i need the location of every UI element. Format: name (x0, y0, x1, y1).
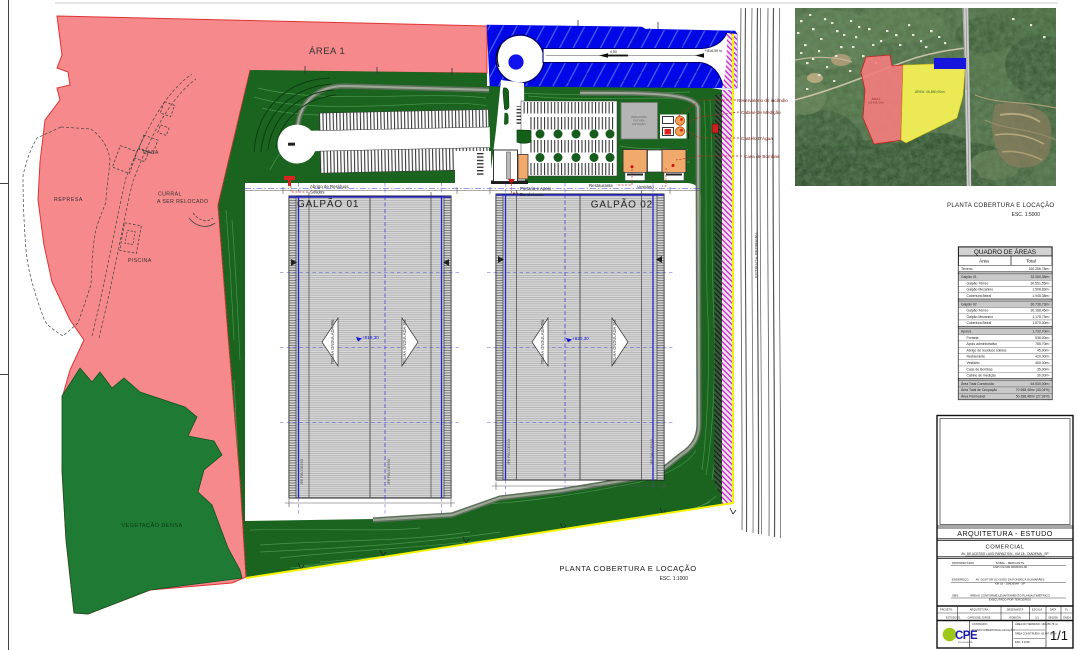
svg-text:ESC. 1:1000: ESC. 1:1000 (660, 576, 689, 582)
svg-text:Abrigo de resíduos sólidos: Abrigo de resíduos sólidos (967, 348, 1007, 352)
svg-text:ESTRADA PEDREIRA: ESTRADA PEDREIRA (754, 231, 759, 278)
svg-text:VEGETAÇÃO DENSA: VEGETAÇÃO DENSA (121, 522, 182, 529)
svg-text:+820,30: +820,30 (572, 336, 589, 341)
svg-text:Casa de Bombas: Casa de Bombas (967, 367, 993, 371)
svg-text:COMERCIAL: COMERCIAL (986, 545, 1025, 551)
svg-text:ÁREA 1: ÁREA 1 (309, 46, 345, 57)
svg-text:1.178,73m²: 1.178,73m² (1032, 315, 1050, 319)
svg-text:FL.: FL. (1065, 608, 1069, 612)
svg-text:Galpão Térreo: Galpão Térreo (967, 281, 989, 285)
svg-text:Portaria: Portaria (967, 336, 979, 340)
svg-text:Cobertura Beiral: Cobertura Beiral (967, 294, 992, 298)
svg-text:TELHA ONDULADA 3%: TELHA ONDULADA 3% (540, 319, 545, 364)
svg-text:Reservatório de incêndio: Reservatório de incêndio (737, 98, 788, 103)
svg-text:ESC. 1:1000: ESC. 1:1000 (1015, 640, 1030, 644)
svg-text:Área Total Construída: Área Total Construída (961, 382, 994, 386)
svg-text:JPE PAV.GESSO: JPE PAV.GESSO (507, 439, 511, 465)
svg-text:Restaurante: Restaurante (967, 355, 986, 359)
svg-text:Galpão 01: Galpão 01 (961, 275, 977, 279)
svg-text:Cabine de medição: Cabine de medição (967, 374, 996, 378)
svg-text:Área: Área (979, 258, 989, 264)
svg-text:Cabine de Medição: Cabine de Medição (741, 110, 781, 115)
svg-text:Galpão Mezanino: Galpão Mezanino (967, 315, 994, 319)
svg-text:GALPÃO 01: GALPÃO 01 (297, 197, 359, 210)
svg-text:ENGENHARIA: ENGENHARIA (958, 641, 973, 644)
svg-text:Galpão Mezanino: Galpão Mezanino (967, 288, 994, 292)
svg-text:1.508,83m²: 1.508,83m² (1032, 288, 1050, 292)
svg-text:DESENHISTA: DESENHISTA (1007, 608, 1024, 612)
svg-text:30.736,73m²: 30.736,73m² (1030, 302, 1050, 306)
svg-text:AV. DE ACESSO LUIGI PAPAIZ S/N: AV. DE ACESSO LUIGI PAPAIZ S/N - KM 18 -… (961, 552, 1048, 556)
svg-text:Área Total de Ocupação: Área Total de Ocupação (961, 388, 997, 392)
svg-text:CAROLINE JORGE: CAROLINE JORGE (968, 616, 991, 620)
svg-text:ESTAÇÃO: ESTAÇÃO (632, 121, 646, 126)
svg-text:Vestiário: Vestiário (967, 361, 980, 365)
svg-text:CASA: CASA (143, 150, 159, 156)
svg-text:ÁREA: 46.850,00m²: ÁREA: 46.850,00m² (915, 90, 946, 94)
svg-text:ÁREA 1: ÁREA 1 (871, 97, 881, 101)
svg-text:1.732,70m²: 1.732,70m² (1032, 330, 1050, 334)
svg-text:REPRESA: REPRESA (54, 197, 83, 203)
svg-text:536,00m²: 536,00m² (1035, 336, 1050, 340)
svg-text:OBS:: OBS: (952, 594, 959, 598)
svg-text:PROPRIETÁRIO:: PROPRIETÁRIO: (952, 561, 975, 565)
svg-text:32.060,38m²: 32.060,38m² (1030, 275, 1050, 279)
svg-text:30.188,45m²: 30.188,45m² (1030, 309, 1050, 313)
svg-text:35,00m²: 35,00m² (1037, 367, 1050, 371)
svg-text:09/2008: 09/2008 (1048, 616, 1058, 620)
svg-text:Galpão 02: Galpão 02 (961, 302, 977, 306)
svg-text:ESTUDO 01: ESTUDO 01 (946, 616, 961, 620)
svg-text:QUADRO DE ÁREAS: QUADRO DE ÁREAS (974, 247, 1036, 256)
svg-text:A SER RELOCADO: A SER RELOCADO (157, 199, 208, 205)
svg-text:30.551,55m²: 30.551,55m² (1030, 281, 1050, 285)
svg-text:785,70m²: 785,70m² (1035, 342, 1050, 346)
svg-text:70.588,48m² (43,04%): 70.588,48m² (43,04%) (1016, 388, 1050, 392)
svg-text:Apoio administrativo: Apoio administrativo (967, 342, 998, 346)
svg-text:1/1: 1/1 (1035, 616, 1039, 620)
svg-text:PLANTA COBERTURA E LOCAÇÃO: PLANTA COBERTURA E LOCAÇÃO (947, 202, 1054, 209)
svg-text:160.256,78m²: 160.256,78m² (1029, 267, 1051, 271)
svg-text:Casa de Bombas: Casa de Bombas (744, 154, 780, 159)
svg-text:ESCALA: ESCALA (1032, 608, 1043, 612)
svg-text:Total: Total (1026, 259, 1036, 264)
svg-text:PISCINA: PISCINA (128, 258, 152, 264)
svg-text:4,50: 4,50 (610, 50, 617, 54)
svg-text:TELHA ONDULADA 3%: TELHA ONDULADA 3% (330, 319, 335, 364)
svg-text:CURRAL: CURRAL (158, 192, 182, 198)
svg-text:Vestiário: Vestiário (637, 185, 654, 190)
svg-text:Terreno: Terreno (961, 267, 973, 271)
svg-text:50.288,48m² (27,93%): 50.288,48m² (27,93%) (1016, 395, 1050, 399)
svg-text:64.530,00m²: 64.530,00m² (1030, 382, 1050, 386)
svg-text:ARQUITETURA - ESTUDO: ARQUITETURA - ESTUDO (957, 529, 1052, 538)
svg-text:+818,59 m: +818,59 m (705, 49, 722, 53)
svg-text:KM 18 - DIADEMA - SP: KM 18 - DIADEMA - SP (995, 582, 1025, 586)
svg-text:Castelo D'Água: Castelo D'Água (741, 135, 773, 141)
svg-text:30,00m²: 30,00m² (1037, 374, 1050, 378)
svg-text:Apoios: Apoios (961, 330, 972, 334)
svg-text:45,00m²: 45,00m² (1037, 348, 1050, 352)
svg-text:Bandeirante: Bandeirante (520, 192, 544, 197)
svg-text:ROBSON: ROBSON (1009, 616, 1020, 620)
svg-text:ENDEREÇO:: ENDEREÇO: (952, 578, 969, 582)
svg-text:Galpão Térreo: Galpão Térreo (967, 309, 989, 313)
svg-text:ARQUITETURA: ARQUITETURA (970, 608, 989, 612)
svg-text:1.948,38m²: 1.948,38m² (1032, 294, 1050, 298)
svg-text:460,00m²: 460,00m² (1035, 361, 1050, 365)
svg-text:PLANTA COBERTURA E LOCAÇÃO: PLANTA COBERTURA E LOCAÇÃO (559, 564, 696, 573)
svg-text:DATA: DATA (1050, 608, 1057, 612)
svg-text:113.406,78m²: 113.406,78m² (868, 100, 884, 104)
svg-text:Restaurante: Restaurante (589, 183, 613, 188)
svg-text:Área Permeável: Área Permeável (961, 395, 986, 399)
svg-text:ESC. 1:5000: ESC. 1:5000 (1012, 212, 1041, 218)
svg-text:ÁREA DO TERRENO: 160.256,78 m²: ÁREA DO TERRENO: 160.256,78 m² (1015, 622, 1058, 626)
svg-text:JPE PAV.GESSO: JPE PAV.GESSO (650, 439, 654, 465)
svg-text:JPE PAV.GESSO: JPE PAV.GESSO (300, 459, 304, 485)
svg-text:1.870,40m²: 1.870,40m² (1032, 321, 1050, 325)
svg-text:JPE PAV.GESSO: JPE PAV.GESSO (387, 459, 391, 485)
svg-text:Cobertura Beiral: Cobertura Beiral (967, 321, 992, 325)
svg-text:420,00m²: 420,00m² (1035, 355, 1050, 359)
svg-text:TELHA ONDULADA 3%: TELHA ONDULADA 3% (402, 319, 407, 364)
svg-text:GALPÃO 02: GALPÃO 02 (591, 198, 653, 211)
svg-text:TELHA ONDULADA 3%: TELHA ONDULADA 3% (612, 319, 617, 364)
svg-text:+819,30: +819,30 (362, 335, 379, 340)
svg-text:PROJETO:: PROJETO: (940, 608, 953, 612)
svg-text:1/1: 1/1 (1050, 628, 1068, 643)
